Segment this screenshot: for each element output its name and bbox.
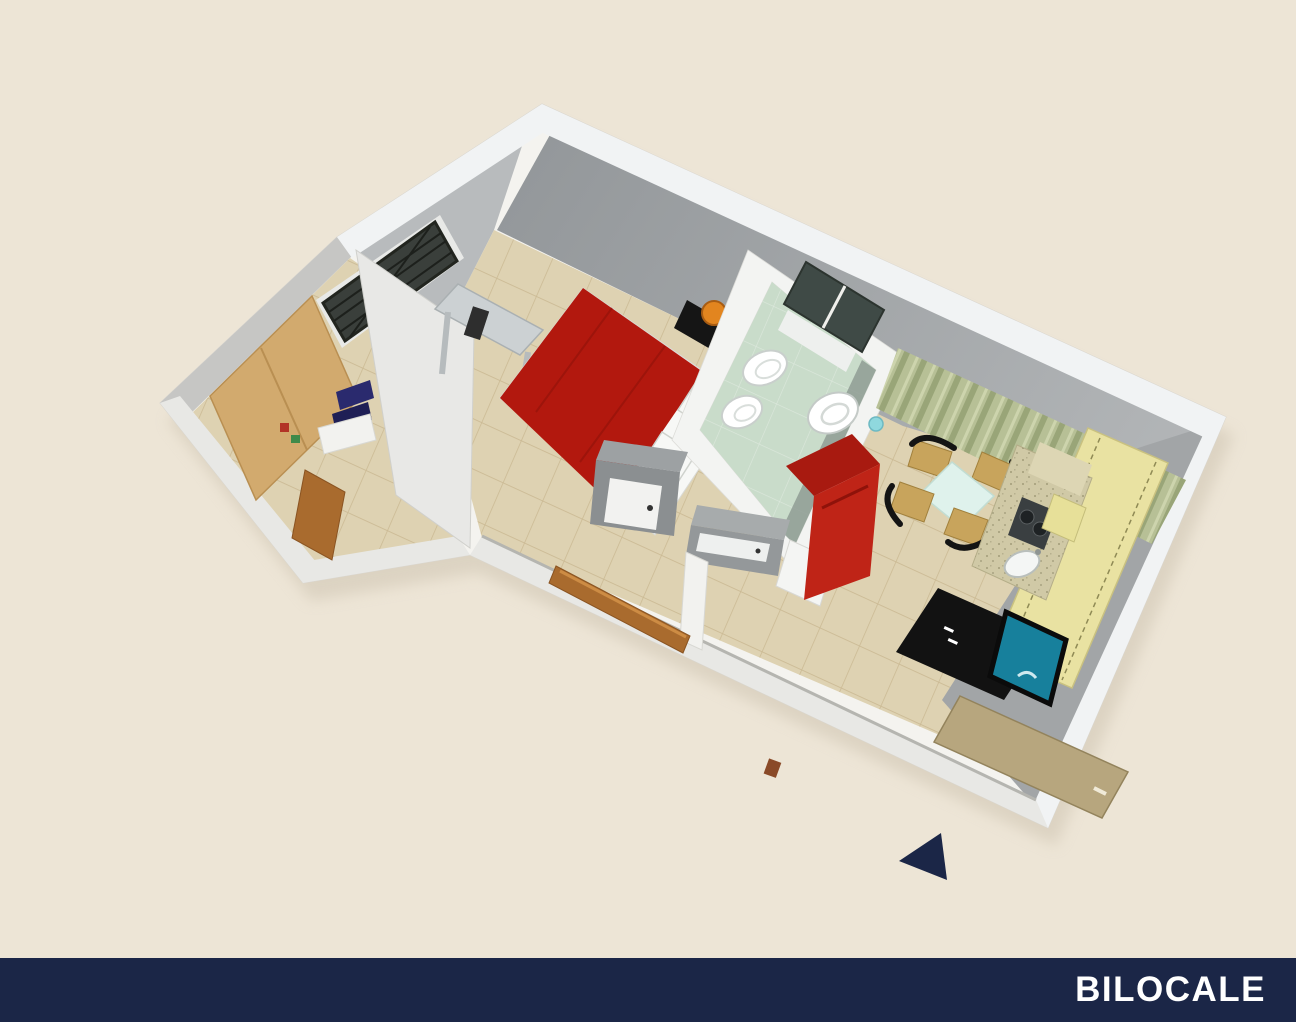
page-title: BILOCALE: [1075, 958, 1266, 1022]
page-background: BILOCALE: [0, 0, 1296, 1022]
footer-bar: BILOCALE: [0, 958, 1296, 1022]
drinking-glass: [869, 417, 883, 431]
burner-1: [1020, 510, 1034, 524]
shower-door-knob: [647, 505, 653, 511]
closet-item-red: [280, 423, 289, 432]
shower-door: [604, 478, 662, 530]
faucet: [1035, 549, 1041, 555]
closet-item-green: [291, 435, 300, 443]
shower: [590, 440, 688, 536]
vanity-knob: [756, 549, 761, 554]
floor-plan-canvas: [0, 0, 1296, 1022]
